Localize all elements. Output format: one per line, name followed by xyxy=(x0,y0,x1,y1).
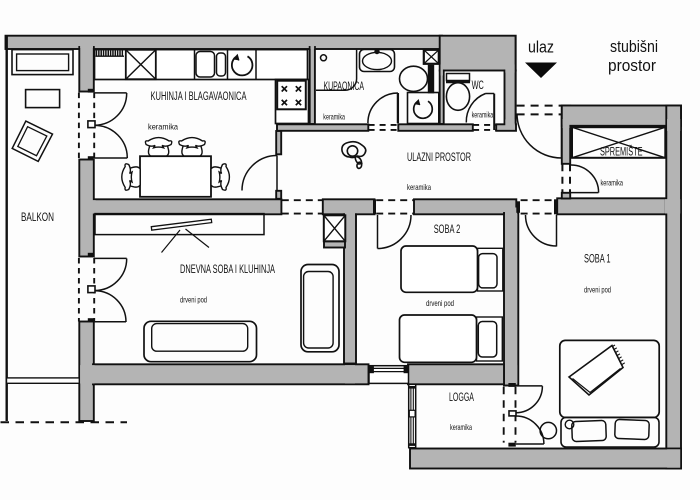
svg-text:keramika: keramika xyxy=(323,112,345,122)
svg-text:keramika: keramika xyxy=(450,422,472,432)
svg-text:KUHINJA I BLAGAVAONICA: KUHINJA I BLAGAVAONICA xyxy=(151,91,247,103)
svg-text:keramika: keramika xyxy=(407,182,431,192)
svg-text:DNEVNA SOBA I KLUHINJA: DNEVNA SOBA I KLUHINJA xyxy=(180,264,275,276)
svg-text:ULAZNI PROSTOR: ULAZNI PROSTOR xyxy=(407,152,471,164)
svg-text:WC: WC xyxy=(472,80,484,92)
svg-text:ulaz: ulaz xyxy=(528,38,554,57)
svg-text:keramika: keramika xyxy=(148,122,178,132)
svg-text:drveni pod: drveni pod xyxy=(426,298,454,308)
svg-text:stubišni: stubišni xyxy=(610,37,658,56)
svg-text:SOBA 2: SOBA 2 xyxy=(434,224,461,236)
svg-text:keramika: keramika xyxy=(601,178,624,188)
svg-text:drveni pod: drveni pod xyxy=(584,285,611,295)
svg-text:SOBA 1: SOBA 1 xyxy=(584,254,611,266)
svg-text:keramika: keramika xyxy=(472,109,494,119)
svg-text:KUPAONICA: KUPAONICA xyxy=(324,81,365,93)
svg-text:BALKON: BALKON xyxy=(21,212,54,224)
svg-text:prostor: prostor xyxy=(608,56,656,75)
svg-text:SPREMIŠTE: SPREMIŠTE xyxy=(600,145,643,158)
svg-text:LOGGA: LOGGA xyxy=(449,392,474,404)
svg-text:drveni pod: drveni pod xyxy=(180,295,207,305)
